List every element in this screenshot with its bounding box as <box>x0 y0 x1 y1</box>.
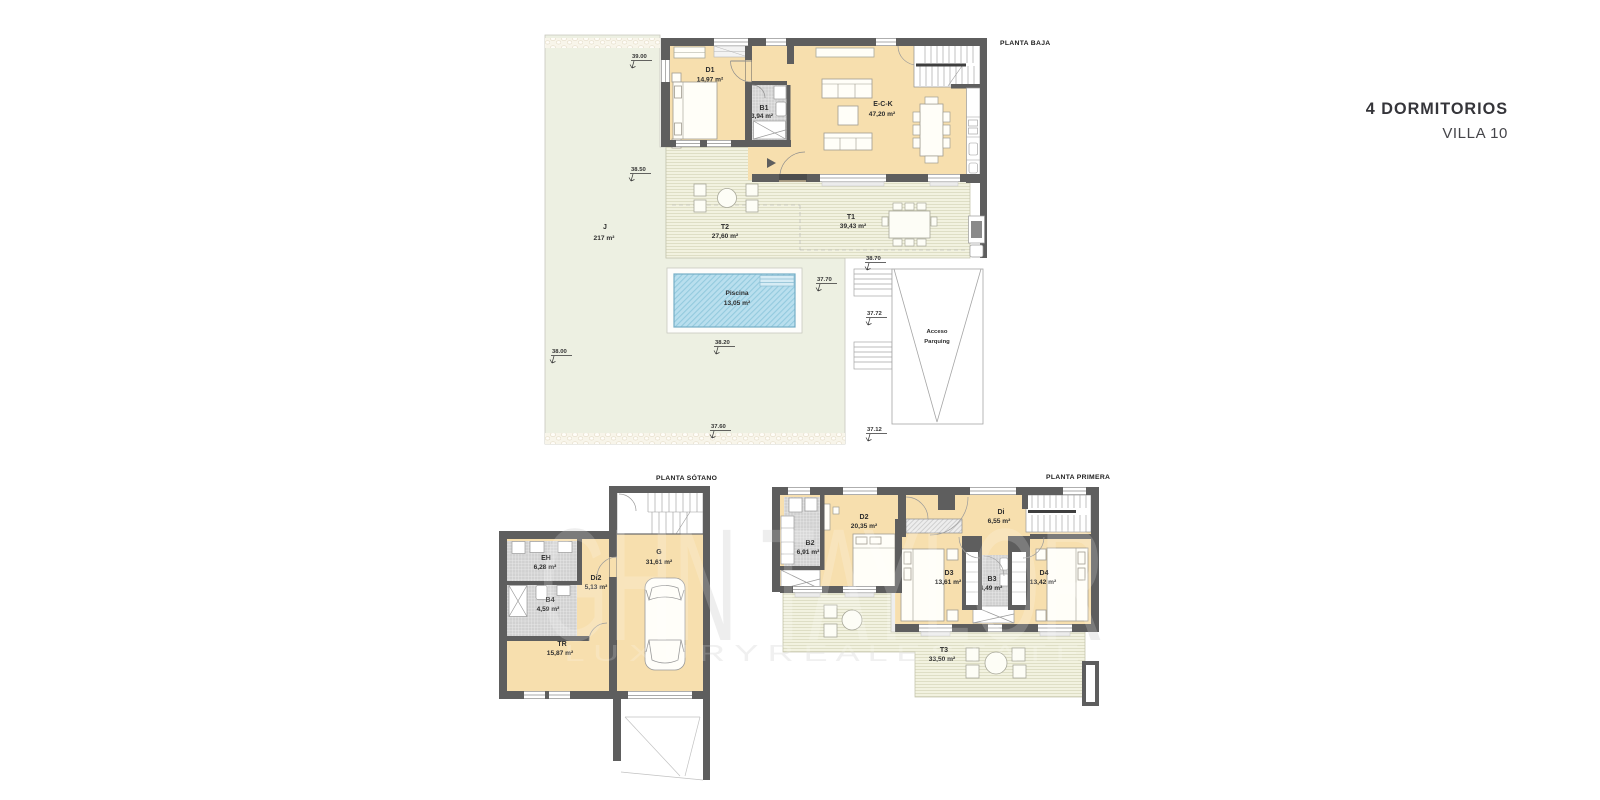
svg-text:Piscina: Piscina <box>725 290 748 297</box>
svg-text:27,60 m²: 27,60 m² <box>712 233 739 240</box>
svg-text:4 DORMITORIOS: 4 DORMITORIOS <box>1366 100 1508 118</box>
svg-text:PLANTA BAJA: PLANTA BAJA <box>1000 40 1051 47</box>
svg-text:PLANTA PRIMERA: PLANTA PRIMERA <box>1046 474 1110 481</box>
svg-text:L U X U R Y R E A L E S T: L U X U R Y R E A L E S T A T E <box>565 640 1080 666</box>
svg-text:37.72: 37.72 <box>867 311 882 317</box>
svg-text:37.70: 37.70 <box>817 277 832 283</box>
svg-text:13,05 m²: 13,05 m² <box>724 300 751 307</box>
svg-text:14,97 m²: 14,97 m² <box>697 77 724 84</box>
svg-text:B1: B1 <box>760 105 769 112</box>
svg-text:38.20: 38.20 <box>715 340 730 346</box>
svg-text:47,20 m²: 47,20 m² <box>869 111 896 118</box>
svg-text:37.60: 37.60 <box>711 424 726 430</box>
svg-text:38.00: 38.00 <box>552 349 567 355</box>
svg-text:J: J <box>603 224 607 231</box>
svg-text:Parquing: Parquing <box>924 339 950 345</box>
svg-text:39.00: 39.00 <box>632 54 647 60</box>
svg-text:39,43 m²: 39,43 m² <box>840 223 867 230</box>
svg-text:38.70: 38.70 <box>866 256 881 262</box>
svg-text:VILLA 10: VILLA 10 <box>1442 125 1508 142</box>
svg-text:T1: T1 <box>847 214 855 221</box>
svg-text:217 m²: 217 m² <box>594 235 616 242</box>
svg-text:PLANTA SÓTANO: PLANTA SÓTANO <box>656 473 717 482</box>
svg-text:38.50: 38.50 <box>631 167 646 173</box>
svg-text:E-C-K: E-C-K <box>873 101 892 108</box>
svg-text:D1: D1 <box>706 67 715 74</box>
svg-text:Acceso: Acceso <box>927 329 948 335</box>
svg-text:3,94 m²: 3,94 m² <box>751 113 773 120</box>
svg-text:37.12: 37.12 <box>867 427 882 433</box>
svg-text:T2: T2 <box>721 224 729 231</box>
